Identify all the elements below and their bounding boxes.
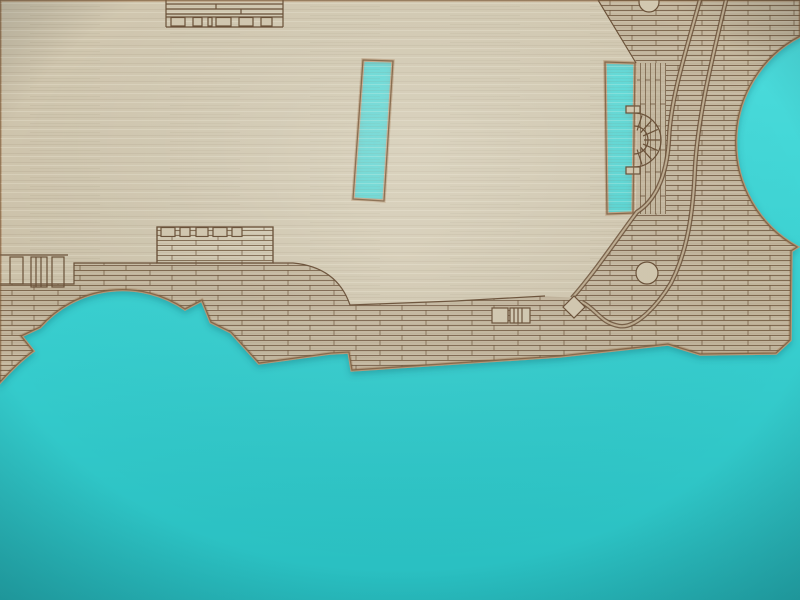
photo-of-wooden-deck-sheet [0,0,800,600]
photo-vignette [0,0,800,600]
scene-canvas [0,0,800,600]
